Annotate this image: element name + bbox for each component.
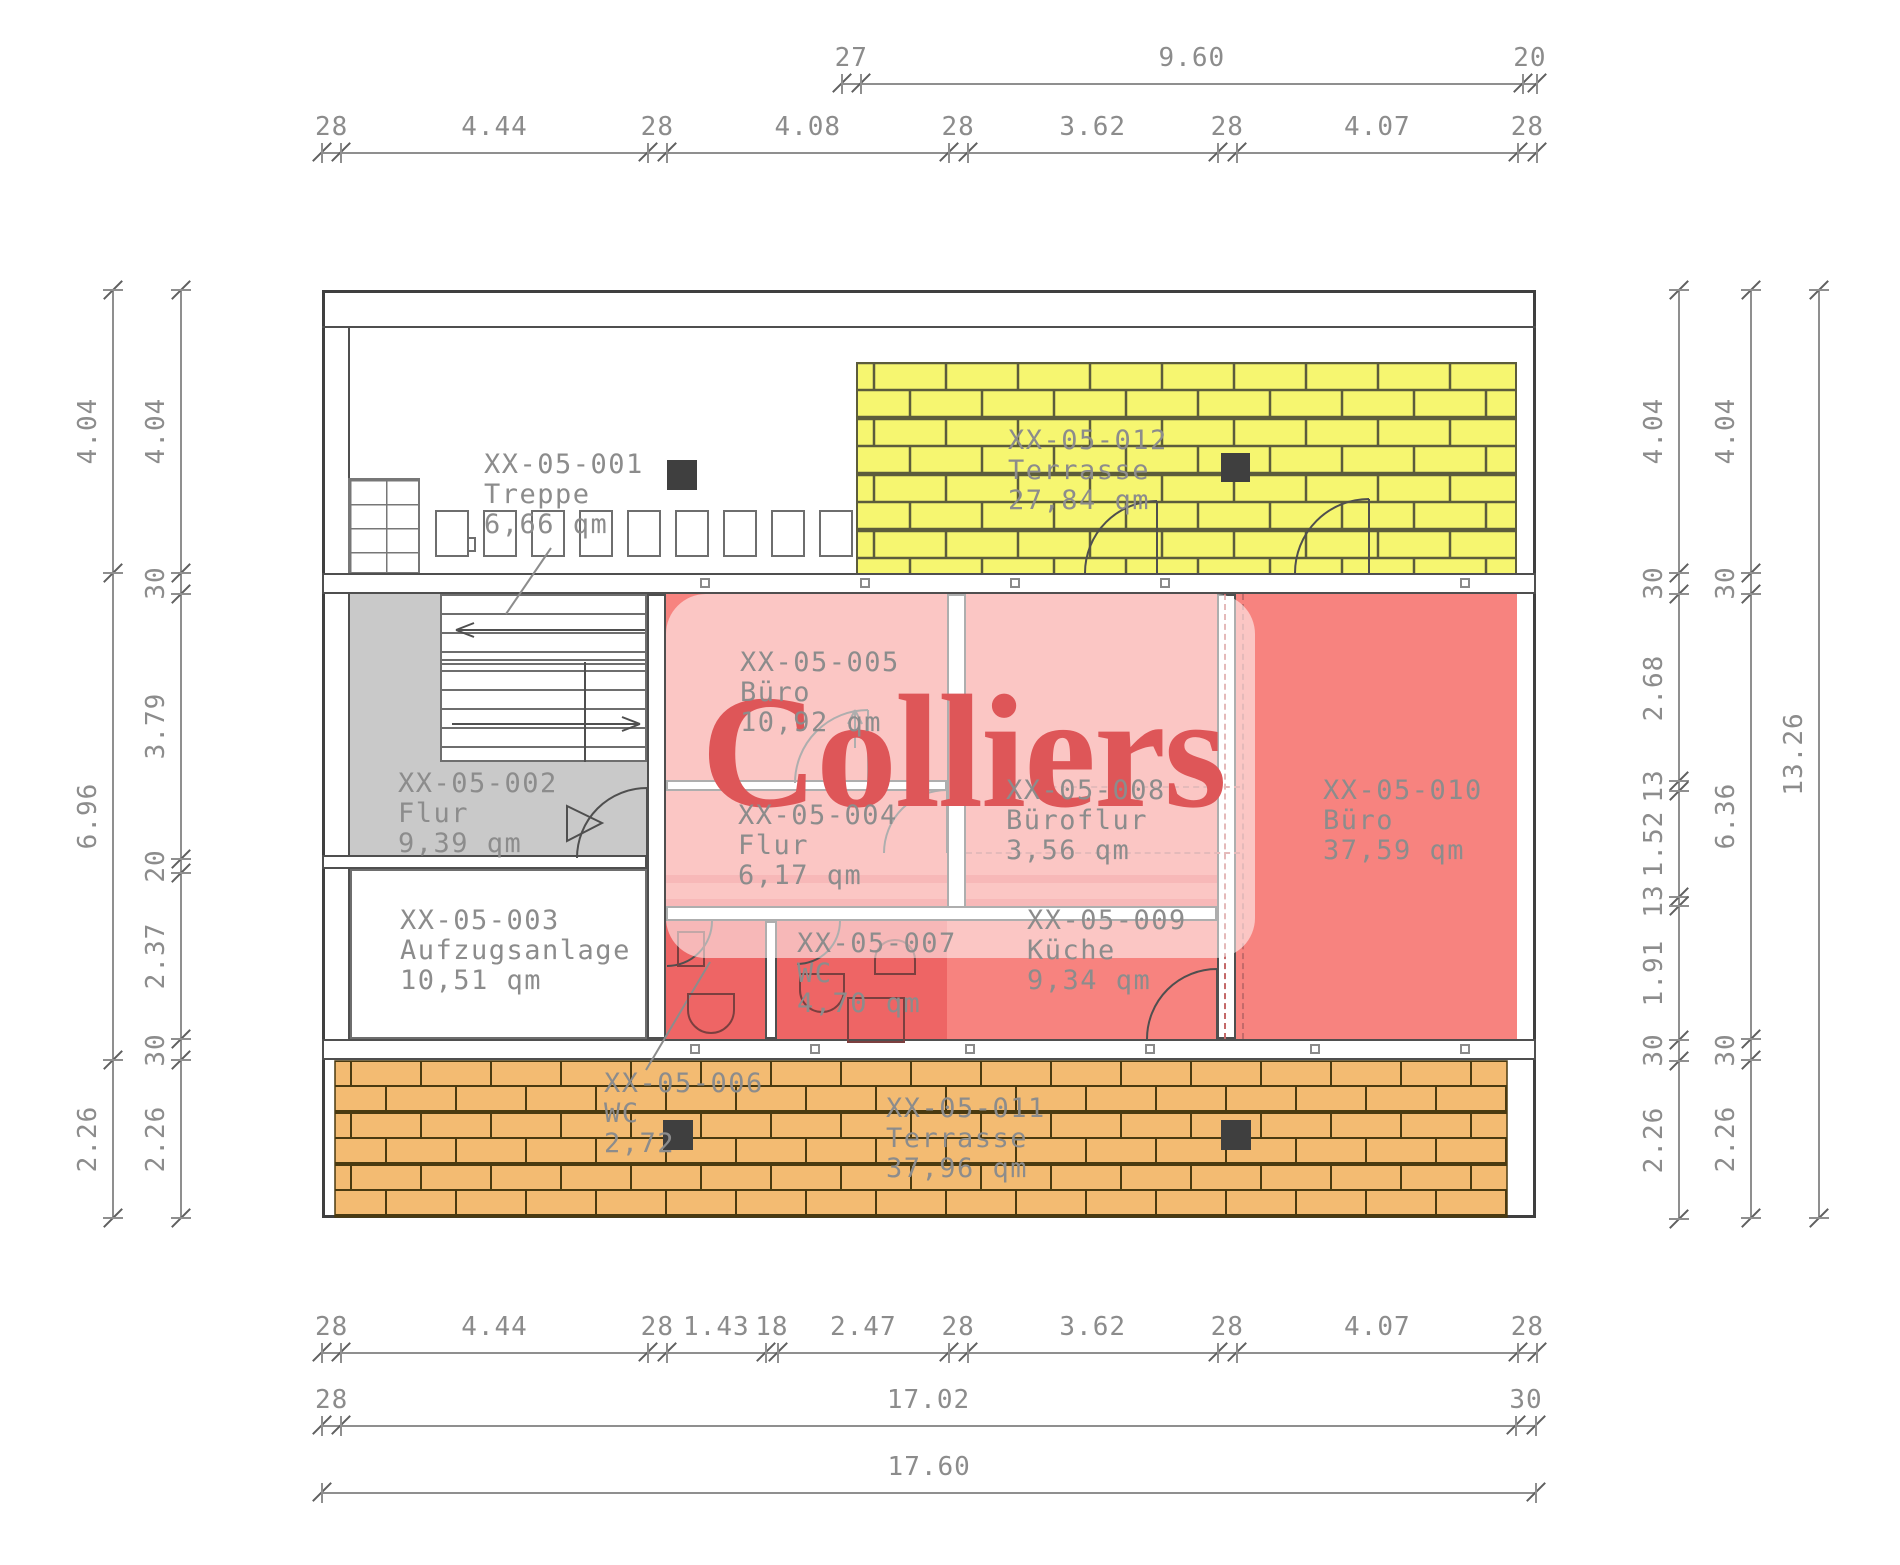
room-label-kueche: XX-05-009 Küche 9,34 qm	[1027, 906, 1187, 996]
room-name: WC	[604, 1099, 764, 1129]
room-label-wc-006: XX-05-006 WC 2,72	[604, 1069, 764, 1159]
dim-value: 2.26	[143, 1106, 169, 1173]
stair-flight-divider	[584, 662, 586, 762]
dim-value: 30	[1713, 567, 1739, 600]
dim-value: 1.52	[1641, 810, 1667, 877]
dim-value: 28	[315, 1387, 348, 1413]
room-name: Treppe	[484, 480, 644, 510]
room-name: Aufzugsanlage	[400, 936, 631, 966]
room-id: XX-05-008	[1006, 776, 1166, 806]
dim-value: 3.62	[1059, 1314, 1126, 1340]
room-name: Büro	[1323, 806, 1483, 836]
dim-value: 1.43	[683, 1314, 750, 1340]
dim-value: 17.60	[888, 1454, 971, 1480]
dim-value: 30	[1641, 567, 1667, 600]
column-terrace-bottom-right	[1221, 1120, 1251, 1150]
room-label-wc-007: XX-05-007 WC 4,70 qm	[797, 929, 957, 1019]
dim-value: 13	[1641, 769, 1667, 802]
dim-value: 4.04	[75, 398, 101, 465]
room-area: 2,72	[604, 1129, 764, 1159]
dim-value: 2.26	[75, 1106, 101, 1173]
room-name: Flur	[738, 831, 898, 861]
dim-value: 1.91	[1641, 940, 1667, 1007]
dim-value: 4.08	[774, 114, 841, 140]
room-label-buero-010: XX-05-010 Büro 37,59 qm	[1323, 776, 1483, 866]
window-mark	[860, 578, 870, 588]
window-mark	[965, 1044, 975, 1054]
room-label-terrasse-011: XX-05-011 Terrasse 37,96 qm	[886, 1094, 1046, 1184]
room-label-flur-002: XX-05-002 Flur 9,39 qm	[398, 769, 558, 859]
room-name: Büro	[740, 678, 900, 708]
room-id: XX-05-005	[740, 648, 900, 678]
room-name: WC	[797, 959, 957, 989]
room-name: Büroflur	[1006, 806, 1166, 836]
wall-vertical-west	[647, 594, 666, 1039]
room-label-treppe: XX-05-001 Treppe 6,66 qm	[484, 450, 644, 540]
roof-window	[723, 510, 757, 557]
room-area: 10,92 qm	[740, 708, 900, 738]
window-mark	[1010, 578, 1020, 588]
room-label-buero-005: XX-05-005 Büro 10,92 qm	[740, 648, 900, 738]
room-area: 27,84 qm	[1008, 486, 1168, 516]
wall-horizontal-bottom	[322, 1039, 1536, 1060]
room-area: 6,17 qm	[738, 861, 898, 891]
room-id: XX-05-011	[886, 1094, 1046, 1124]
room-label-aufzugsanlage: XX-05-003 Aufzugsanlage 10,51 qm	[400, 906, 631, 996]
window-mark	[700, 578, 710, 588]
dim-value: 28	[315, 114, 348, 140]
roof-window	[435, 510, 469, 557]
dim-value: 4.07	[1344, 1314, 1411, 1340]
dim-value: 28	[1511, 114, 1544, 140]
dim-value: 30	[1509, 1387, 1542, 1413]
dim-value: 28	[641, 1314, 674, 1340]
room-id: XX-05-010	[1323, 776, 1483, 806]
room-id: XX-05-012	[1008, 426, 1168, 456]
window-mark	[1460, 1044, 1470, 1054]
dim-value: 6.96	[75, 783, 101, 850]
window-mark	[1160, 578, 1170, 588]
dim-value: 2.47	[830, 1314, 897, 1340]
room-label-bueroflur: XX-05-008 Büroflur 3,56 qm	[1006, 776, 1166, 866]
wall-horizontal-top	[322, 573, 1536, 594]
dim-value: 6.36	[1713, 783, 1739, 850]
dim-value: 28	[315, 1314, 348, 1340]
dim-value: 18	[755, 1314, 788, 1340]
parapet-line	[322, 326, 1536, 328]
dim-value: 20	[1513, 45, 1546, 71]
dim-value: 2.37	[143, 923, 169, 990]
dim-value: 13	[1641, 885, 1667, 918]
room-area: 9,39 qm	[398, 829, 558, 859]
dim-value: 2.26	[1713, 1106, 1739, 1173]
dim-value: 4.04	[143, 398, 169, 465]
room-name: Terrasse	[886, 1124, 1046, 1154]
column-terrace-top	[1221, 453, 1250, 482]
roof-window	[771, 510, 805, 557]
dim-value: 4.04	[1641, 398, 1667, 465]
room-area: 3,56 qm	[1006, 836, 1166, 866]
room-area: 9,34 qm	[1027, 966, 1187, 996]
dim-value: 28	[942, 1314, 975, 1340]
room-id: XX-05-001	[484, 450, 644, 480]
roof-grid-skylight	[348, 478, 420, 574]
room-area: 37,96 qm	[886, 1154, 1046, 1184]
dim-value: 30	[1641, 1034, 1667, 1067]
dim-value: 4.07	[1344, 114, 1411, 140]
dim-value: 28	[1211, 1314, 1244, 1340]
dim-value: 4.44	[461, 1314, 528, 1340]
dim-value: 27	[835, 45, 868, 71]
dim-value: 28	[942, 114, 975, 140]
dim-value: 3.79	[143, 693, 169, 760]
window-mark	[1460, 578, 1470, 588]
dim-value: 20	[143, 849, 169, 882]
room-name: Terrasse	[1008, 456, 1168, 486]
dim-value: 17.02	[887, 1387, 970, 1413]
staircase	[440, 594, 647, 762]
dim-value: 2.68	[1641, 654, 1667, 721]
dim-value: 3.62	[1059, 114, 1126, 140]
room-area: 37,59 qm	[1323, 836, 1483, 866]
floorplan-canvas: Colliers XX-05-001 Treppe 6,66 qm XX-05-…	[0, 0, 1900, 1565]
dim-value: 30	[143, 1033, 169, 1066]
dim-value: 4.04	[1713, 398, 1739, 465]
room-label-flur-004: XX-05-004 Flur 6,17 qm	[738, 801, 898, 891]
dim-value: 28	[641, 114, 674, 140]
terrace-top-bricks	[856, 362, 1517, 586]
column-roof	[667, 460, 697, 490]
room-area: 10,51 qm	[400, 966, 631, 996]
window-mark	[690, 1044, 700, 1054]
window-mark	[810, 1044, 820, 1054]
room-id: XX-05-004	[738, 801, 898, 831]
window-mark	[1310, 1044, 1320, 1054]
room-label-terrasse-012: XX-05-012 Terrasse 27,84 qm	[1008, 426, 1168, 516]
room-id: XX-05-007	[797, 929, 957, 959]
dim-value: 30	[1713, 1033, 1739, 1066]
window-mark	[1145, 1044, 1155, 1054]
room-name: Küche	[1027, 936, 1187, 966]
dim-value: 28	[1211, 114, 1244, 140]
dim-value: 2.26	[1641, 1106, 1667, 1173]
room-area: 4,70 qm	[797, 989, 957, 1019]
room-id: XX-05-003	[400, 906, 631, 936]
room-name: Flur	[398, 799, 558, 829]
room-id: XX-05-006	[604, 1069, 764, 1099]
dim-value: 13.26	[1781, 712, 1807, 795]
dim-value: 30	[143, 567, 169, 600]
dim-value: 4.44	[461, 114, 528, 140]
dim-value: 9.60	[1159, 45, 1226, 71]
room-id: XX-05-009	[1027, 906, 1187, 936]
roof-window	[675, 510, 709, 557]
stair-landing-divider	[440, 659, 647, 665]
roof-window	[819, 510, 853, 557]
room-area: 6,66 qm	[484, 510, 644, 540]
room-id: XX-05-002	[398, 769, 558, 799]
dim-value: 28	[1511, 1314, 1544, 1340]
